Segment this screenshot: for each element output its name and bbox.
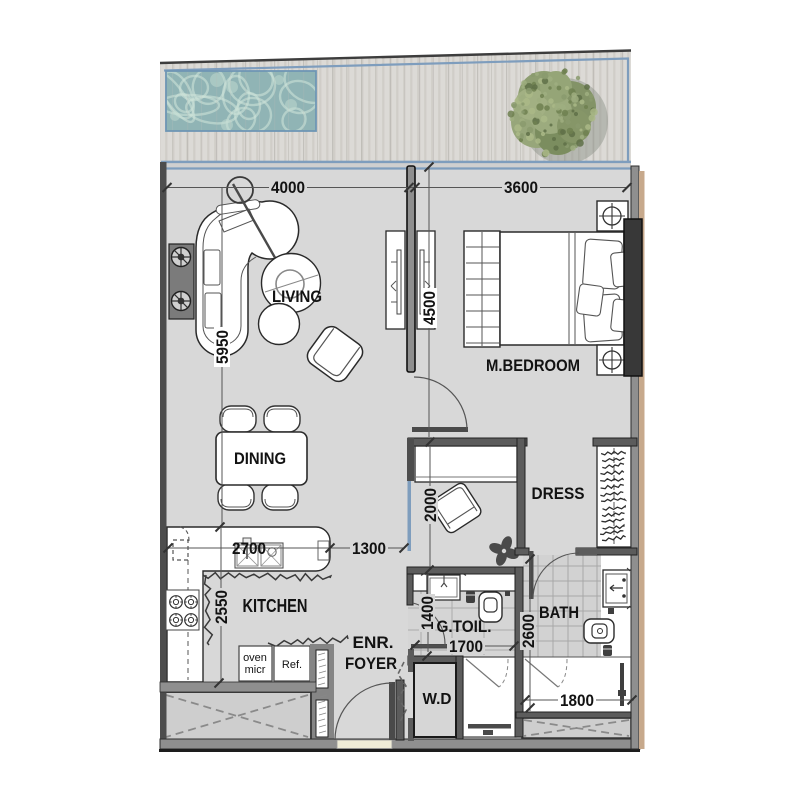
svg-text:ENR.: ENR. bbox=[353, 633, 394, 652]
svg-text:4000: 4000 bbox=[271, 178, 305, 197]
svg-text:FOYER: FOYER bbox=[345, 654, 397, 673]
svg-text:micr: micr bbox=[245, 664, 266, 676]
svg-text:2600: 2600 bbox=[519, 614, 538, 648]
svg-text:1400: 1400 bbox=[418, 596, 437, 630]
svg-text:Ref.: Ref. bbox=[282, 659, 302, 671]
svg-text:1700: 1700 bbox=[449, 637, 483, 656]
svg-text:2550: 2550 bbox=[212, 590, 231, 624]
svg-text:G.TOIL.: G.TOIL. bbox=[437, 617, 492, 636]
svg-text:KITCHEN: KITCHEN bbox=[243, 596, 308, 616]
svg-text:LIVING: LIVING bbox=[272, 287, 322, 306]
svg-text:oven: oven bbox=[243, 652, 267, 664]
svg-text:2000: 2000 bbox=[421, 488, 440, 522]
svg-text:DRESS: DRESS bbox=[532, 484, 585, 503]
svg-text:1800: 1800 bbox=[560, 691, 594, 710]
svg-text:W.D: W.D bbox=[423, 691, 452, 708]
svg-text:5950: 5950 bbox=[213, 330, 232, 364]
svg-text:2700: 2700 bbox=[232, 539, 266, 558]
svg-text:BATH: BATH bbox=[539, 603, 579, 622]
svg-text:3600: 3600 bbox=[504, 178, 538, 197]
svg-text:1300: 1300 bbox=[352, 539, 386, 558]
svg-text:4500: 4500 bbox=[420, 291, 439, 325]
svg-text:M.BEDROOM: M.BEDROOM bbox=[486, 356, 580, 375]
svg-text:DINING: DINING bbox=[234, 449, 286, 468]
